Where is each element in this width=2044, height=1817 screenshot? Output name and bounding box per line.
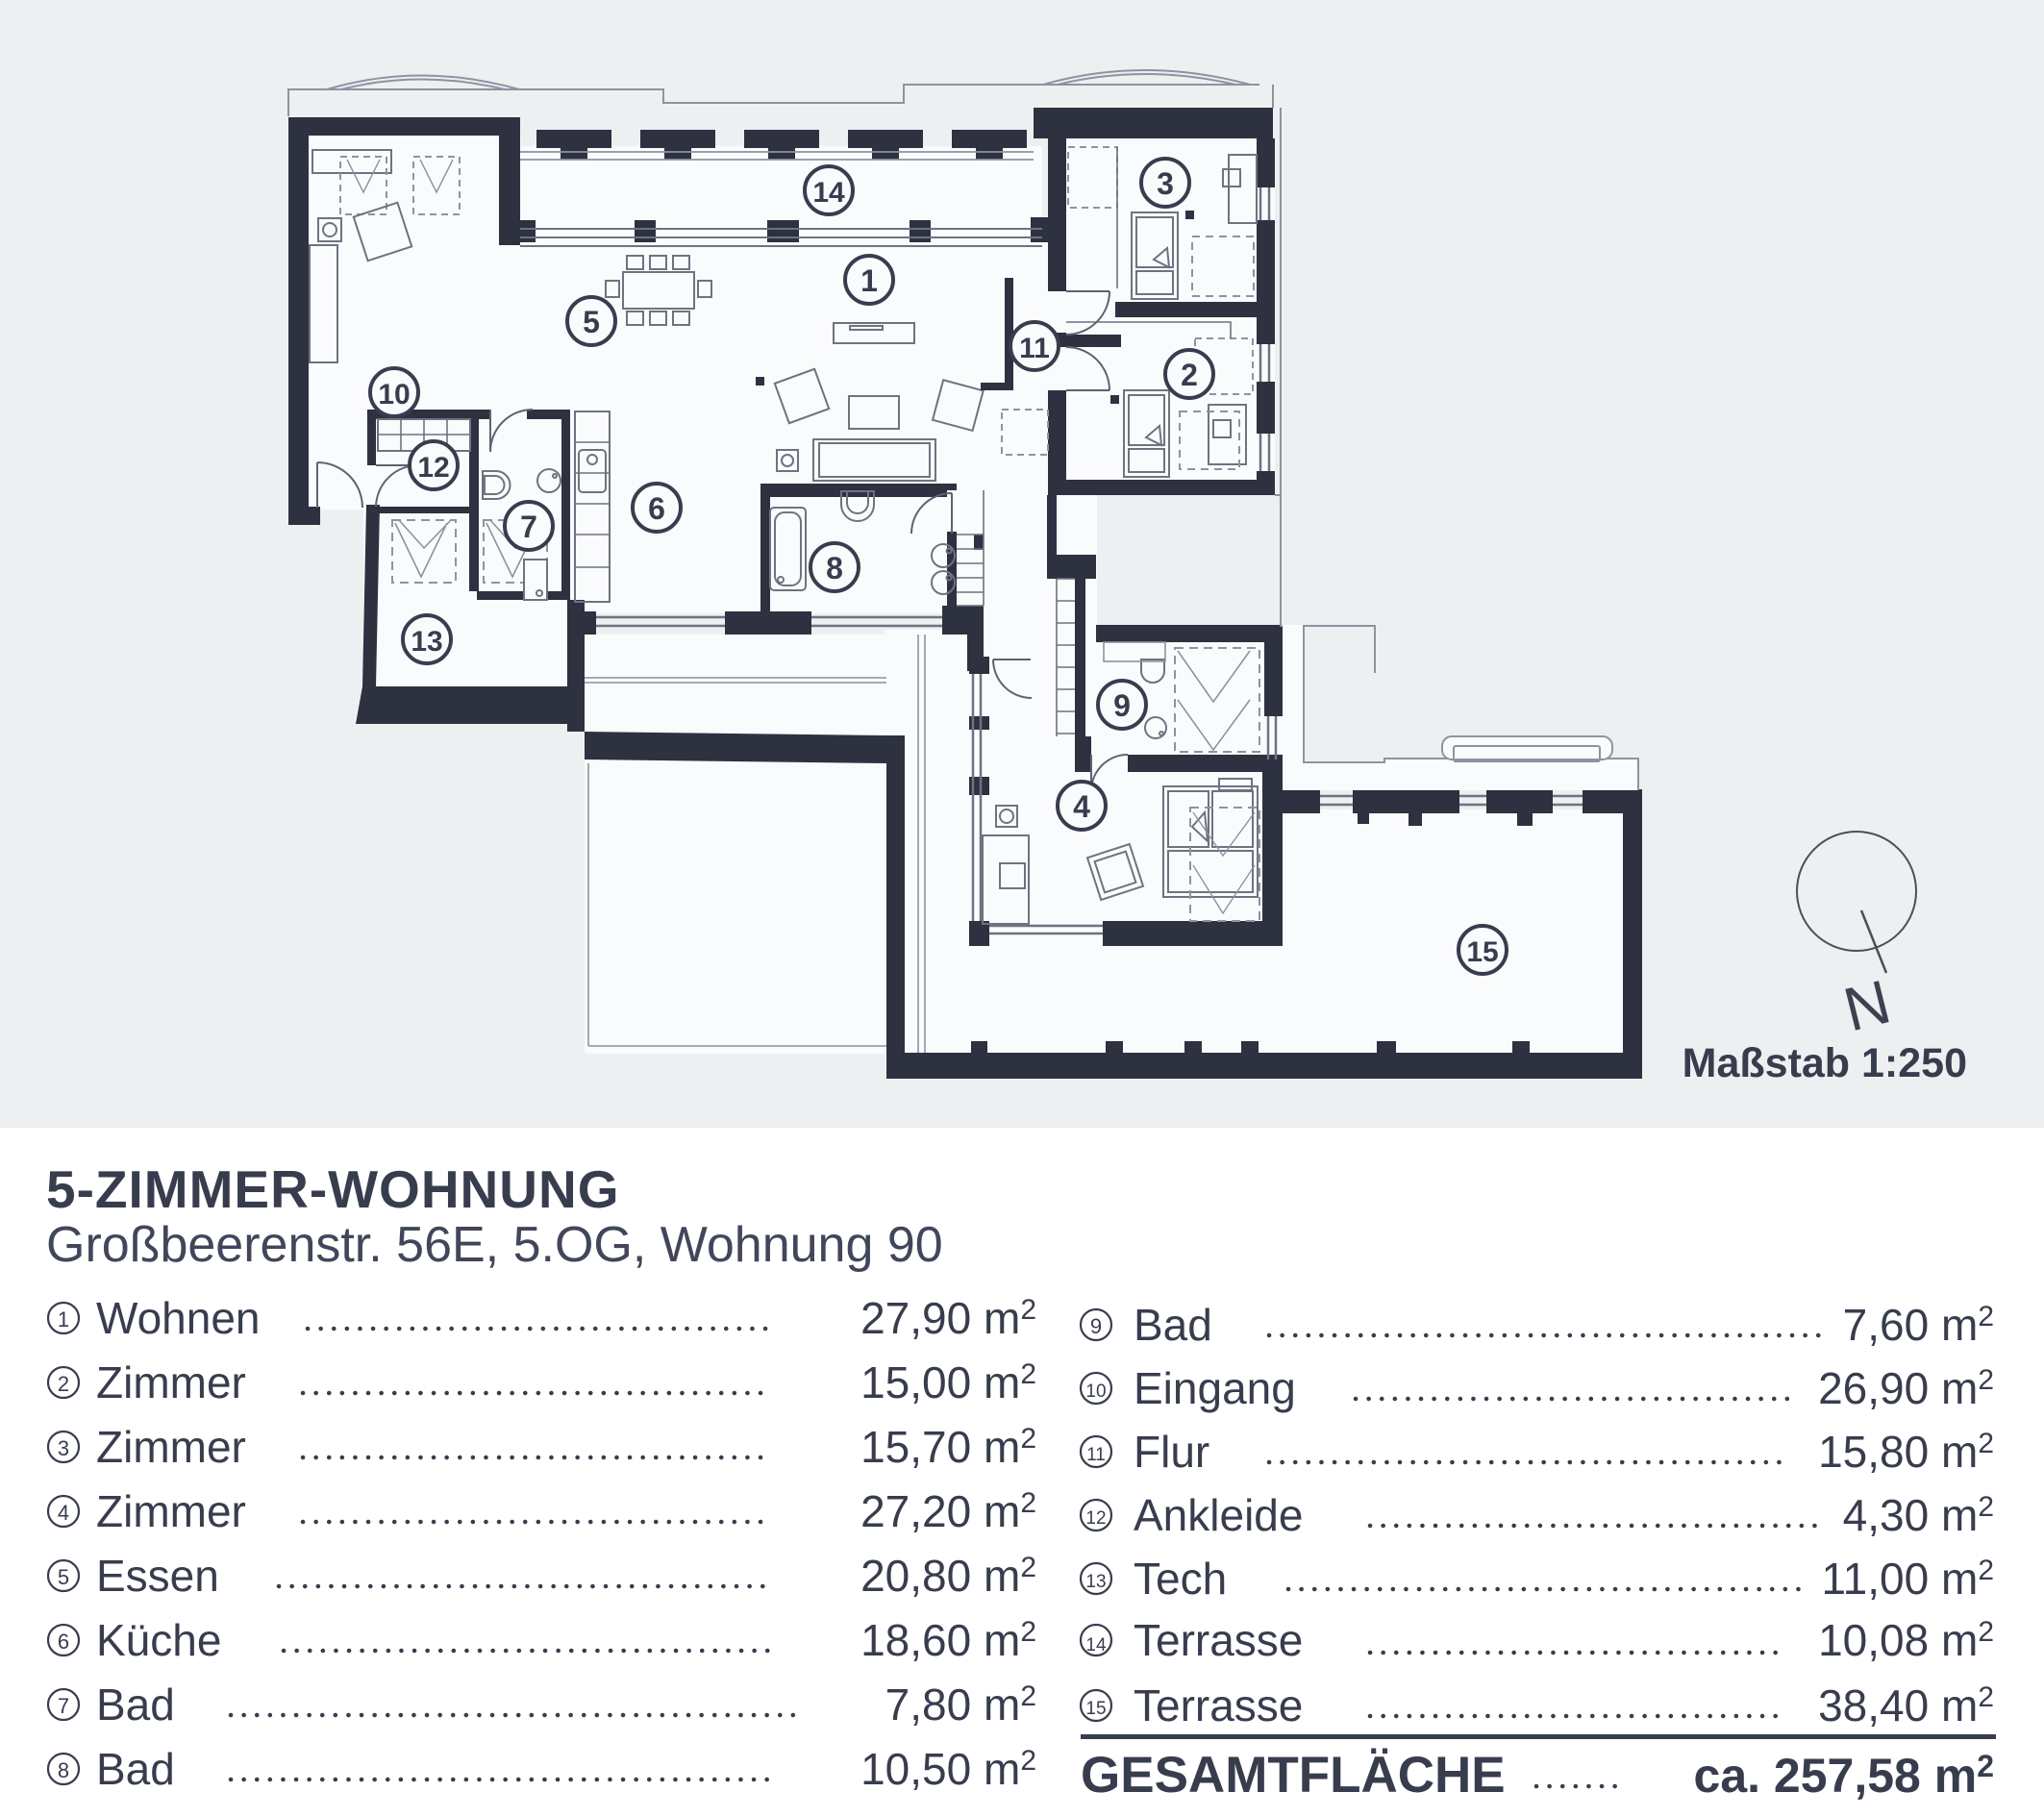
svg-text:18,60 m2: 18,60 m2 — [860, 1615, 1036, 1665]
svg-text:Terrasse: Terrasse — [1134, 1615, 1303, 1665]
svg-text:11: 11 — [1019, 333, 1050, 364]
svg-text:15,80 m2: 15,80 m2 — [1818, 1427, 1994, 1477]
svg-text:8: 8 — [58, 1758, 69, 1782]
svg-text:5: 5 — [583, 305, 600, 339]
svg-text:Bad: Bad — [1134, 1300, 1212, 1350]
svg-text:10,08 m2: 10,08 m2 — [1818, 1615, 1994, 1665]
svg-text:26,90 m2: 26,90 m2 — [1818, 1363, 1994, 1413]
svg-text:Großbeerenstr. 56E, 5.OG, Wohn: Großbeerenstr. 56E, 5.OG, Wohnung 90 — [46, 1217, 943, 1273]
svg-text:2: 2 — [1181, 358, 1198, 392]
svg-text:13: 13 — [411, 626, 442, 658]
svg-text:10: 10 — [1085, 1381, 1106, 1402]
svg-text:15: 15 — [1085, 1699, 1106, 1719]
svg-text:Maßstab 1:250: Maßstab 1:250 — [1683, 1040, 1967, 1086]
svg-text:Zimmer: Zimmer — [96, 1422, 246, 1472]
svg-text:15,70 m2: 15,70 m2 — [860, 1422, 1036, 1472]
svg-text:Terrasse: Terrasse — [1134, 1680, 1303, 1730]
svg-text:Essen: Essen — [96, 1551, 219, 1601]
svg-text:3: 3 — [58, 1436, 69, 1460]
svg-text:15,00 m2: 15,00 m2 — [860, 1357, 1036, 1407]
svg-text:27,90 m2: 27,90 m2 — [860, 1293, 1036, 1343]
svg-text:Wohnen: Wohnen — [96, 1293, 261, 1343]
svg-text:9: 9 — [1113, 688, 1131, 723]
svg-text:Zimmer: Zimmer — [96, 1357, 246, 1407]
svg-text:7,60 m2: 7,60 m2 — [1843, 1300, 1994, 1350]
svg-text:4,30 m2: 4,30 m2 — [1843, 1490, 1994, 1540]
svg-text:6: 6 — [648, 491, 665, 526]
svg-text:Bad: Bad — [96, 1680, 175, 1730]
svg-text:Eingang: Eingang — [1134, 1363, 1296, 1413]
svg-text:4: 4 — [1073, 789, 1090, 824]
svg-text:7,80 m2: 7,80 m2 — [885, 1680, 1036, 1730]
svg-text:5-ZIMMER-WOHNUNG: 5-ZIMMER-WOHNUNG — [46, 1159, 619, 1219]
svg-text:20,80 m2: 20,80 m2 — [860, 1551, 1036, 1601]
svg-text:Zimmer: Zimmer — [96, 1486, 246, 1536]
svg-text:3: 3 — [1157, 166, 1174, 201]
svg-text:Tech: Tech — [1134, 1554, 1227, 1604]
svg-text:GESAMTFLÄCHE: GESAMTFLÄCHE — [1081, 1747, 1506, 1804]
svg-text:5: 5 — [58, 1565, 69, 1589]
svg-text:14: 14 — [812, 177, 845, 209]
svg-text:1: 1 — [860, 263, 878, 298]
svg-text:4: 4 — [58, 1501, 69, 1525]
svg-text:ca. 257,58 m2: ca. 257,58 m2 — [1694, 1749, 1994, 1803]
svg-text:38,40 m2: 38,40 m2 — [1818, 1680, 1994, 1730]
svg-text:14: 14 — [1085, 1635, 1107, 1655]
svg-text:Küche: Küche — [96, 1615, 221, 1665]
svg-text:7: 7 — [520, 510, 537, 544]
svg-text:27,20 m2: 27,20 m2 — [860, 1486, 1036, 1536]
svg-text:10,50 m2: 10,50 m2 — [860, 1744, 1036, 1794]
svg-text:15: 15 — [1466, 936, 1498, 968]
svg-text:12: 12 — [1085, 1508, 1106, 1529]
svg-text:Ankleide: Ankleide — [1134, 1490, 1303, 1540]
svg-text:8: 8 — [826, 551, 843, 585]
svg-text:10: 10 — [378, 379, 410, 411]
svg-text:9: 9 — [1090, 1314, 1102, 1338]
svg-text:Bad: Bad — [96, 1744, 175, 1794]
svg-text:6: 6 — [58, 1630, 69, 1654]
svg-text:2: 2 — [58, 1372, 69, 1396]
svg-text:7: 7 — [58, 1694, 69, 1718]
svg-text:11: 11 — [1086, 1445, 1106, 1465]
svg-text:11,00 m2: 11,00 m2 — [1822, 1554, 1994, 1604]
svg-text:13: 13 — [1085, 1572, 1106, 1592]
svg-text:1: 1 — [58, 1307, 69, 1332]
svg-text:Flur: Flur — [1134, 1427, 1209, 1477]
svg-text:12: 12 — [417, 452, 449, 484]
